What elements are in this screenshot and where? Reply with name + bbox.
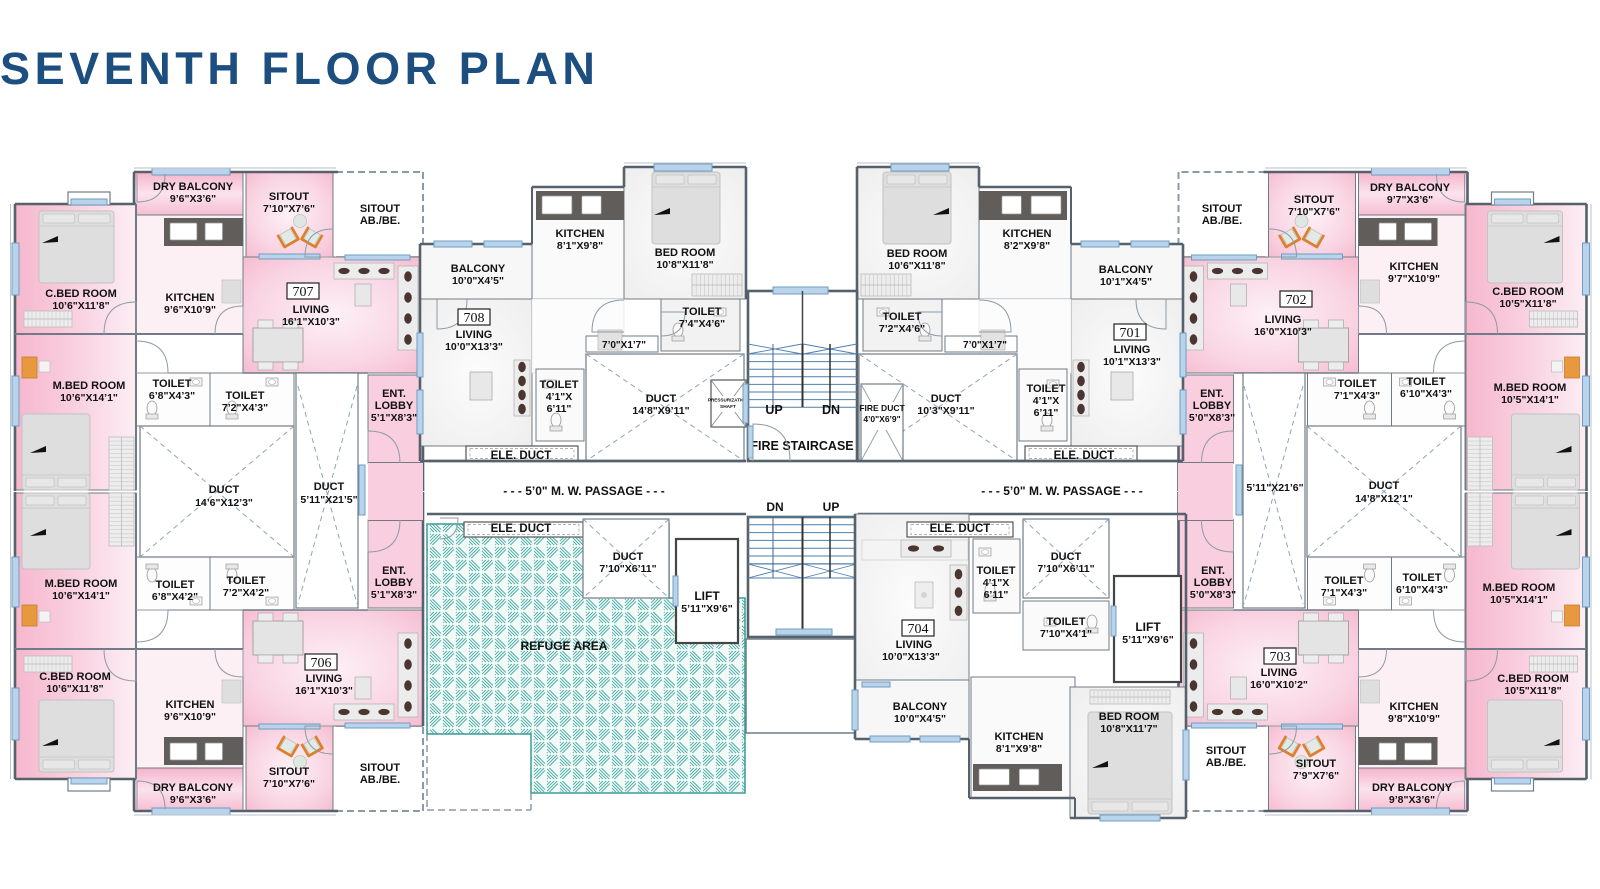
svg-text:- - - 5’0" M. W. PASSAGE: - - - 5’0" M. W. PASSAGE - - - (503, 484, 664, 498)
svg-text:14’6"X12’3": 14’6"X12’3" (195, 497, 253, 509)
svg-text:AB./BE.: AB./BE. (1206, 757, 1246, 769)
svg-text:TOILET: TOILET (1047, 616, 1086, 628)
svg-text:KITCHEN: KITCHEN (166, 292, 215, 304)
svg-text:708: 708 (464, 311, 485, 326)
svg-text:LIVING: LIVING (306, 673, 343, 685)
svg-text:10’5"X11’8": 10’5"X11’8" (1504, 685, 1561, 697)
svg-text:C.BED ROOM: C.BED ROOM (39, 671, 111, 683)
svg-text:DUCT: DUCT (613, 551, 644, 563)
svg-text:4’1"X: 4’1"X (546, 391, 573, 403)
svg-text:ENT.: ENT. (382, 388, 406, 400)
svg-text:FIRE STAIRCASE: FIRE STAIRCASE (750, 439, 853, 453)
svg-text:M.BED ROOM: M.BED ROOM (45, 578, 118, 590)
svg-text:UP: UP (765, 403, 782, 417)
svg-text:9’7"X10’9": 9’7"X10’9" (1388, 273, 1440, 285)
svg-text:9’6"X3’6": 9’6"X3’6" (170, 193, 216, 205)
svg-text:AB./BE.: AB./BE. (1202, 215, 1242, 227)
svg-text:DUCT: DUCT (209, 484, 240, 496)
svg-text:10’3"X9’11": 10’3"X9’11" (917, 405, 974, 417)
svg-text:6’11": 6’11" (1034, 407, 1059, 419)
svg-text:BALCONY: BALCONY (451, 263, 506, 275)
svg-text:TOILET: TOILET (977, 565, 1016, 577)
svg-text:LOBBY: LOBBY (375, 400, 414, 412)
svg-text:ENT.: ENT. (1201, 565, 1225, 577)
svg-text:SITOUT: SITOUT (1296, 758, 1336, 770)
svg-text:LIVING: LIVING (293, 304, 330, 316)
svg-text:6’8"X4’3": 6’8"X4’3" (149, 390, 195, 402)
svg-text:5’11"X21’5": 5’11"X21’5" (300, 494, 357, 506)
svg-text:ENT.: ENT. (1200, 388, 1224, 400)
svg-text:9’8"X10’9": 9’8"X10’9" (1388, 713, 1440, 725)
svg-text:LIVING: LIVING (456, 329, 493, 341)
svg-text:SITOUT: SITOUT (360, 762, 400, 774)
svg-text:7’10"X7’6": 7’10"X7’6" (263, 203, 315, 215)
svg-text:10’6"X11’8": 10’6"X11’8" (52, 300, 109, 312)
svg-text:DUCT: DUCT (1051, 551, 1082, 563)
svg-text:7’1"X4’3": 7’1"X4’3" (1321, 587, 1367, 599)
svg-text:6’10"X4’3": 6’10"X4’3" (1400, 388, 1452, 400)
svg-text:TOILET: TOILET (227, 575, 266, 587)
svg-text:LIVING: LIVING (896, 639, 933, 651)
svg-text:ENT.: ENT. (382, 565, 406, 577)
svg-text:7’10"X6’11": 7’10"X6’11" (599, 563, 656, 575)
svg-text:SITOUT: SITOUT (269, 766, 309, 778)
svg-text:7’0"X1’7": 7’0"X1’7" (963, 340, 1007, 351)
svg-text:5’11"X21’6": 5’11"X21’6" (1246, 482, 1303, 494)
svg-text:7’4"X4’6": 7’4"X4’6" (679, 318, 725, 330)
svg-text:KITCHEN: KITCHEN (1390, 701, 1439, 713)
svg-text:C.BED ROOM: C.BED ROOM (45, 288, 117, 300)
svg-text:KITCHEN: KITCHEN (995, 731, 1044, 743)
svg-text:5’1"X8’3": 5’1"X8’3" (371, 412, 417, 424)
svg-text:10’5"X14’1": 10’5"X14’1" (1501, 394, 1559, 406)
svg-text:16’1"X10’3": 16’1"X10’3" (295, 685, 353, 697)
svg-text:4’1"X: 4’1"X (1033, 395, 1060, 407)
svg-text:DRY BALCONY: DRY BALCONY (1370, 182, 1451, 194)
svg-text:TOILET: TOILET (1407, 376, 1446, 388)
svg-text:10’0"X13’3": 10’0"X13’3" (882, 651, 940, 663)
svg-text:TOILET: TOILET (156, 579, 195, 591)
svg-text:701: 701 (1120, 326, 1141, 341)
svg-text:10’5"X11’8": 10’5"X11’8" (1499, 298, 1556, 310)
svg-text:5’0"X8’3": 5’0"X8’3" (1189, 412, 1235, 424)
svg-text:DN: DN (822, 403, 840, 417)
svg-text:SITOUT: SITOUT (269, 191, 309, 203)
svg-text:BALCONY: BALCONY (1099, 264, 1154, 276)
svg-text:DRY BALCONY: DRY BALCONY (153, 181, 234, 193)
svg-text:KITCHEN: KITCHEN (166, 699, 215, 711)
svg-text:M.BED ROOM: M.BED ROOM (1494, 382, 1567, 394)
svg-text:BED ROOM: BED ROOM (1099, 711, 1160, 723)
svg-text:702: 702 (1286, 293, 1307, 308)
svg-text:8’1"X9’8": 8’1"X9’8" (996, 743, 1042, 755)
svg-text:AB./BE.: AB./BE. (360, 774, 400, 786)
svg-text:LIVING: LIVING (1114, 344, 1151, 356)
svg-text:M.BED ROOM: M.BED ROOM (1483, 582, 1556, 594)
svg-text:10’0"X4’5": 10’0"X4’5" (894, 713, 946, 725)
svg-text:7’1"X4’3": 7’1"X4’3" (1334, 390, 1380, 402)
svg-text:5’11"X9’6": 5’11"X9’6" (681, 603, 732, 615)
svg-text:7’10"X6’11": 7’10"X6’11" (1037, 563, 1094, 575)
svg-text:7’10"X4’1": 7’10"X4’1" (1040, 628, 1092, 640)
svg-text:7’2"X4’6": 7’2"X4’6" (879, 323, 925, 335)
svg-text:8’2"X9’8": 8’2"X9’8" (1004, 240, 1050, 252)
svg-text:DRY BALCONY: DRY BALCONY (153, 782, 234, 794)
svg-text:TOILET: TOILET (1027, 383, 1066, 395)
svg-text:8’1"X9’8": 8’1"X9’8" (557, 240, 603, 252)
svg-text:6’11": 6’11" (547, 403, 572, 415)
svg-text:UP: UP (823, 500, 840, 514)
svg-text:10’0"X4’5": 10’0"X4’5" (452, 275, 504, 287)
svg-text:10’6"X14’1": 10’6"X14’1" (52, 590, 110, 602)
svg-text:C.BED ROOM: C.BED ROOM (1497, 673, 1569, 685)
svg-text:TOILET: TOILET (1338, 378, 1377, 390)
svg-text:7’10"X7’6": 7’10"X7’6" (263, 778, 315, 790)
svg-text:LIFT: LIFT (694, 589, 720, 603)
svg-text:10’6"X11’8": 10’6"X11’8" (888, 260, 945, 272)
svg-text:- - - 5’0" M. W. PASSAGE: - - - 5’0" M. W. PASSAGE - - - (981, 484, 1142, 498)
svg-text:7’2"X4’2": 7’2"X4’2" (223, 587, 269, 599)
svg-text:7’10"X7’6": 7’10"X7’6" (1288, 206, 1340, 218)
svg-text:4’1"X: 4’1"X (983, 577, 1010, 589)
svg-text:706: 706 (311, 656, 332, 671)
svg-text:TOILET: TOILET (153, 378, 192, 390)
svg-text:7’2"X4’3": 7’2"X4’3" (222, 402, 268, 414)
svg-text:LOBBY: LOBBY (1194, 577, 1233, 589)
svg-text:DUCT: DUCT (646, 393, 677, 405)
svg-text:704: 704 (908, 622, 929, 637)
svg-text:6’8"X4’2": 6’8"X4’2" (152, 591, 198, 603)
svg-text:10’8"X11’7": 10’8"X11’7" (1100, 723, 1157, 735)
svg-text:6’10"X4’3": 6’10"X4’3" (1396, 584, 1448, 596)
svg-text:DUCT: DUCT (931, 393, 962, 405)
svg-text:REFUGE AREA: REFUGE AREA (521, 639, 608, 653)
svg-text:10’6"X14’1": 10’6"X14’1" (60, 392, 118, 404)
svg-text:9’7"X3’6": 9’7"X3’6" (1387, 194, 1433, 206)
svg-text:SITOUT: SITOUT (1206, 745, 1246, 757)
svg-text:LOBBY: LOBBY (375, 577, 414, 589)
svg-text:TOILET: TOILET (683, 306, 722, 318)
svg-text:6’11": 6’11" (984, 589, 1009, 601)
svg-text:TOILET: TOILET (1325, 575, 1364, 587)
svg-text:ELE. DUCT: ELE. DUCT (930, 523, 991, 535)
svg-text:TOILET: TOILET (540, 379, 579, 391)
svg-text:707: 707 (293, 285, 314, 300)
svg-text:DN: DN (766, 500, 783, 514)
svg-text:10’5"X14’1": 10’5"X14’1" (1490, 594, 1548, 606)
svg-text:9’6"X10’9": 9’6"X10’9" (164, 711, 216, 723)
svg-text:5’1"X8’3": 5’1"X8’3" (371, 589, 417, 601)
svg-text:703: 703 (1270, 650, 1291, 665)
svg-text:16’0"X10’3": 16’0"X10’3" (1254, 326, 1312, 338)
svg-text:ELE. DUCT: ELE. DUCT (491, 523, 552, 535)
svg-text:DUCT: DUCT (314, 481, 345, 493)
svg-text:SHAFT: SHAFT (720, 404, 736, 410)
svg-text:TOILET: TOILET (226, 390, 265, 402)
svg-text:C.BED ROOM: C.BED ROOM (1492, 286, 1564, 298)
svg-text:DUCT: DUCT (1369, 480, 1400, 492)
svg-text:10’8"X11’8": 10’8"X11’8" (656, 259, 713, 271)
svg-text:9’6"X10’9": 9’6"X10’9" (164, 304, 216, 316)
svg-text:LIVING: LIVING (1265, 314, 1302, 326)
svg-text:10’1"X4’5": 10’1"X4’5" (1100, 276, 1152, 288)
svg-text:SITOUT: SITOUT (1202, 203, 1242, 215)
svg-text:KITCHEN: KITCHEN (1390, 261, 1439, 273)
svg-text:10’6"X11’8": 10’6"X11’8" (46, 683, 103, 695)
svg-text:KITCHEN: KITCHEN (556, 228, 605, 240)
svg-text:10’0"X13’3": 10’0"X13’3" (445, 341, 503, 353)
svg-text:7’0"X1’7": 7’0"X1’7" (602, 340, 646, 351)
svg-text:BALCONY: BALCONY (893, 701, 948, 713)
svg-text:10’1"X13’3": 10’1"X13’3" (1103, 356, 1161, 368)
svg-text:5’11"X9’6": 5’11"X9’6" (1122, 634, 1173, 646)
svg-text:9’6"X3’6": 9’6"X3’6" (170, 794, 216, 806)
svg-text:KITCHEN: KITCHEN (1003, 228, 1052, 240)
svg-text:14’8"X12’1": 14’8"X12’1" (1355, 493, 1413, 505)
svg-text:BED ROOM: BED ROOM (655, 247, 716, 259)
svg-text:5’0"X8’3": 5’0"X8’3" (1190, 589, 1236, 601)
svg-text:FIRE DUCT: FIRE DUCT (859, 403, 905, 413)
svg-text:LIVING: LIVING (1261, 667, 1298, 679)
svg-text:LIFT: LIFT (1135, 620, 1161, 634)
svg-text:BED ROOM: BED ROOM (887, 248, 948, 260)
svg-text:14’8"X9’11": 14’8"X9’11" (632, 405, 689, 417)
svg-text:SITOUT: SITOUT (1294, 194, 1334, 206)
svg-text:16’0"X10’2": 16’0"X10’2" (1250, 679, 1308, 691)
svg-text:TOILET: TOILET (883, 311, 922, 323)
svg-text:9’8"X3’6": 9’8"X3’6" (1389, 794, 1435, 806)
svg-text:SEVENTH FLOOR PLAN: SEVENTH FLOOR PLAN (0, 43, 599, 94)
svg-text:M.BED ROOM: M.BED ROOM (53, 380, 126, 392)
svg-text:TOILET: TOILET (1403, 572, 1442, 584)
svg-text:DRY BALCONY: DRY BALCONY (1372, 782, 1453, 794)
svg-text:LOBBY: LOBBY (1193, 400, 1232, 412)
svg-text:SITOUT: SITOUT (360, 203, 400, 215)
svg-text:4’0"X6’9": 4’0"X6’9" (863, 414, 900, 424)
svg-text:7’9"X7’6": 7’9"X7’6" (1293, 770, 1339, 782)
svg-text:AB./BE.: AB./BE. (360, 215, 400, 227)
svg-text:16’1"X10’3": 16’1"X10’3" (282, 316, 340, 328)
